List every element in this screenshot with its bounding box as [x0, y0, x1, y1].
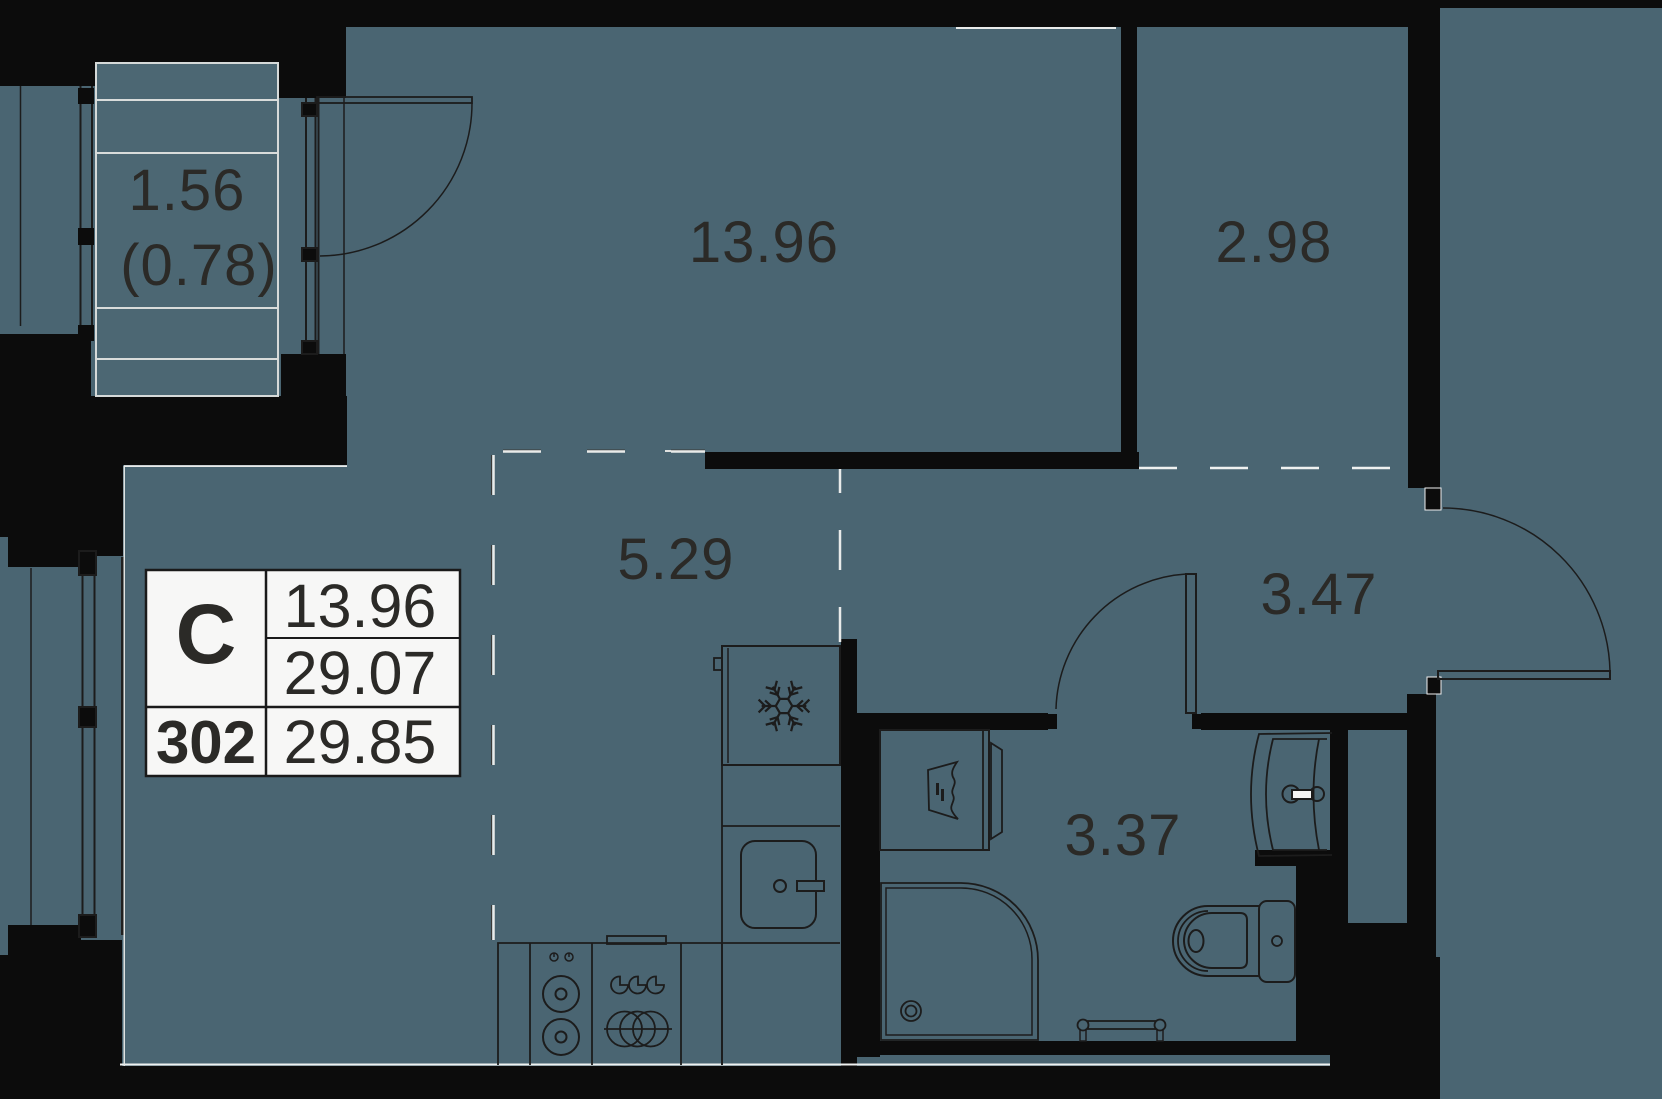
svg-text:13.96: 13.96 — [689, 210, 839, 275]
svg-text:3.37: 3.37 — [1065, 803, 1182, 868]
svg-text:2.98: 2.98 — [1216, 210, 1333, 275]
svg-text:5.29: 5.29 — [618, 527, 735, 592]
svg-text:29.07: 29.07 — [284, 639, 437, 707]
svg-text:1.56: 1.56 — [129, 158, 246, 223]
svg-text:(0.78): (0.78) — [120, 233, 278, 298]
svg-text:С: С — [176, 587, 237, 681]
svg-text:13.96: 13.96 — [284, 572, 437, 640]
svg-text:3.47: 3.47 — [1261, 562, 1378, 627]
svg-text:302: 302 — [156, 709, 256, 776]
svg-text:29.85: 29.85 — [284, 708, 437, 776]
